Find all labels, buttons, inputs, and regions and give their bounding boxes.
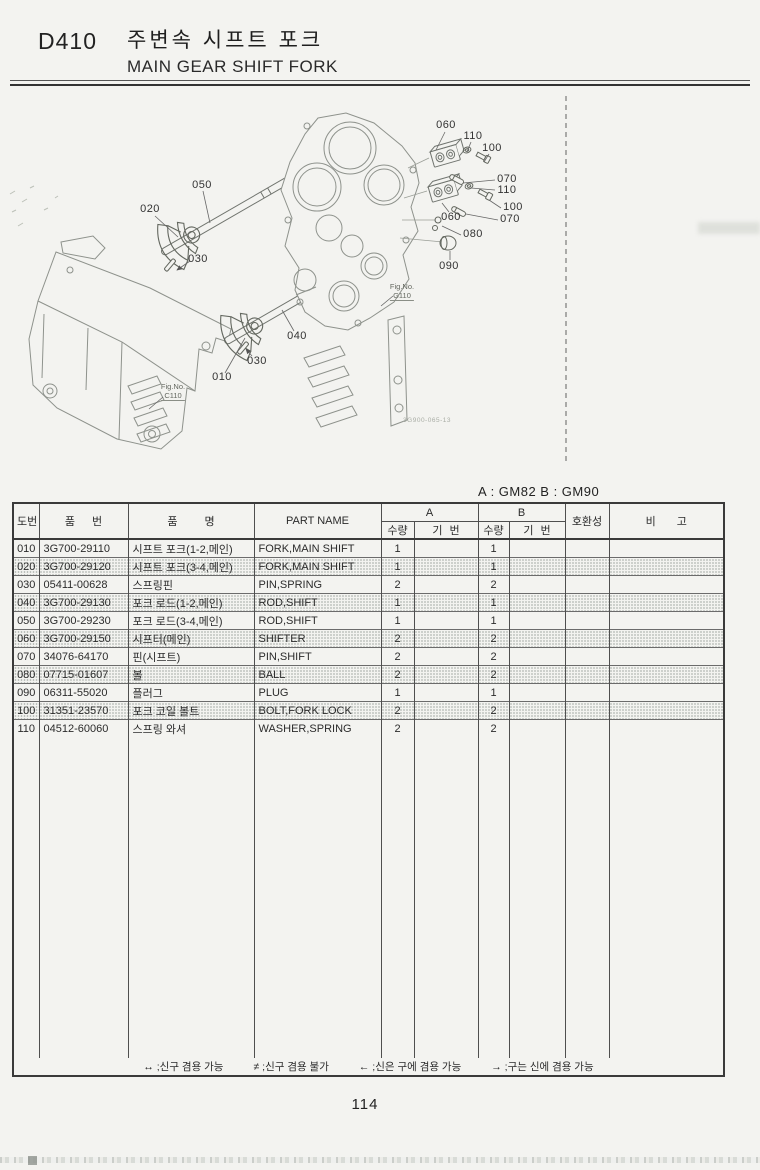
cell-remarks [609, 576, 724, 594]
cell-name-kr: 스프링 와셔 [128, 720, 254, 738]
table-row: 010 3G700-29110 시프트 포크(1-2,메인) FORK,MAIN… [13, 539, 724, 558]
callout-070-lower: 070 [500, 214, 520, 225]
cell-part-name: ROD,SHIFT [254, 612, 381, 630]
table-row: 080 07715-01607 볼 BALL 2 2 [13, 666, 724, 684]
cell-name-kr: 포크 코일 볼트 [128, 702, 254, 720]
legend-row: ↔ ;신구 겸용 가능 ≠ ;신구 겸용 불가 ← ;신은 구에 겸용 가능 →… [13, 1058, 724, 1076]
cell-qty-b: 2 [478, 648, 509, 666]
shifter-060-upper [429, 139, 466, 167]
cell-ref-no: 010 [13, 539, 39, 558]
cell-ref-b [509, 630, 565, 648]
cell-ref-a [414, 612, 478, 630]
cell-compat [565, 720, 609, 738]
fig-ref-g110: Fig.No. G110 [390, 283, 414, 301]
cell-ref-no: 040 [13, 594, 39, 612]
cell-part-name: ROD,SHIFT [254, 594, 381, 612]
callout-030-upper: 030 [188, 254, 208, 265]
legend-item-both: ↔ ;신구 겸용 가능 [143, 1059, 223, 1074]
scan-edge-band [0, 1157, 760, 1163]
cell-compat [565, 612, 609, 630]
spring-pin-030-lower [237, 341, 249, 354]
cell-compat [565, 666, 609, 684]
callout-100-lower: 100 [503, 202, 523, 213]
page-title-english: MAIN GEAR SHIFT FORK [127, 57, 338, 77]
cell-qty-a: 2 [381, 720, 414, 738]
callout-050: 050 [192, 180, 212, 191]
col-header-ref-no: 도번 [13, 503, 39, 539]
cell-qty-b: 1 [478, 594, 509, 612]
page-number: 114 [0, 1096, 730, 1113]
cell-ref-a [414, 720, 478, 738]
table-row: 050 3G700-29230 포크 로드(3-4,메인) ROD,SHIFT … [13, 612, 724, 630]
plate-code: 3G900-065-13 [403, 417, 451, 424]
cell-qty-b: 2 [478, 702, 509, 720]
col-group-a: A [381, 503, 478, 522]
table-row: 090 06311-55020 플러그 PLUG 1 1 [13, 684, 724, 702]
cell-name-kr: 시프터(메인) [128, 630, 254, 648]
cell-part-no: 3G700-29120 [39, 558, 128, 576]
cell-qty-a: 2 [381, 630, 414, 648]
callout-020: 020 [140, 204, 160, 215]
cell-part-no: 34076-64170 [39, 648, 128, 666]
ball-080 [433, 217, 442, 231]
cell-name-kr: 시프트 포크(3-4,메인) [128, 558, 254, 576]
cell-part-no: 31351-23570 [39, 702, 128, 720]
cell-remarks [609, 720, 724, 738]
col-header-ref-b: 기 번 [509, 522, 565, 540]
cell-name-kr: 시프트 포크(1-2,메인) [128, 539, 254, 558]
cell-remarks [609, 594, 724, 612]
col-header-qty-b: 수량 [478, 522, 509, 540]
cell-ref-b [509, 594, 565, 612]
callout-110-lower: 110 [497, 185, 516, 196]
cell-ref-b [509, 684, 565, 702]
cell-part-name: BALL [254, 666, 381, 684]
cell-ref-a [414, 684, 478, 702]
legend-item-neither: ≠ ;신구 겸용 불가 [253, 1059, 328, 1074]
cell-name-kr: 볼 [128, 666, 254, 684]
cell-ref-a [414, 539, 478, 558]
header-rule-thin [10, 80, 750, 81]
cell-qty-a: 2 [381, 576, 414, 594]
callout-010: 010 [212, 372, 232, 383]
cell-part-name: PIN,SHIFT [254, 648, 381, 666]
table-row: 100 31351-23570 포크 코일 볼트 BOLT,FORK LOCK … [13, 702, 724, 720]
cell-ref-b [509, 576, 565, 594]
cell-part-no: 06311-55020 [39, 684, 128, 702]
callout-040: 040 [287, 331, 307, 342]
cell-qty-a: 2 [381, 666, 414, 684]
page-title-korean: 주변속 시프트 포크 [127, 24, 323, 54]
cell-part-no: 3G700-29130 [39, 594, 128, 612]
table-row: 070 34076-64170 핀(시프트) PIN,SHIFT 2 2 [13, 648, 724, 666]
cell-qty-b: 1 [478, 558, 509, 576]
fig-ref-c110: Fig.No. C110 [161, 383, 185, 401]
scan-speckles [10, 186, 58, 226]
col-header-name-kr: 품 명 [128, 503, 254, 539]
exploded-parts-diagram: 050 020 030 040 030 010 060 110 100 070 … [0, 90, 760, 488]
cell-compat [565, 702, 609, 720]
cell-qty-a: 1 [381, 684, 414, 702]
cell-part-no: 04512-60060 [39, 720, 128, 738]
cell-qty-b: 1 [478, 612, 509, 630]
cell-ref-no: 100 [13, 702, 39, 720]
cell-qty-a: 2 [381, 648, 414, 666]
cell-part-no: 07715-01607 [39, 666, 128, 684]
cell-remarks [609, 539, 724, 558]
table-filler-row [13, 737, 724, 1058]
cell-part-name: PIN,SPRING [254, 576, 381, 594]
cell-remarks [609, 612, 724, 630]
cell-ref-b [509, 558, 565, 576]
cell-compat [565, 648, 609, 666]
cell-ref-a [414, 648, 478, 666]
compatibility-legend: ↔ ;신구 겸용 가능 ≠ ;신구 겸용 불가 ← ;신은 구에 겸용 가능 →… [17, 1059, 720, 1074]
cell-part-no: 3G700-29110 [39, 539, 128, 558]
cell-part-no: 3G700-29150 [39, 630, 128, 648]
callout-060-upper: 060 [436, 120, 456, 131]
cell-ref-no: 110 [13, 720, 39, 738]
cell-ref-no: 050 [13, 612, 39, 630]
cell-compat [565, 576, 609, 594]
cell-qty-a: 1 [381, 594, 414, 612]
cell-ref-no: 020 [13, 558, 39, 576]
cell-ref-a [414, 630, 478, 648]
cell-qty-b: 1 [478, 684, 509, 702]
cell-name-kr: 스프링핀 [128, 576, 254, 594]
callout-080: 080 [463, 229, 483, 240]
col-group-b: B [478, 503, 565, 522]
cell-ref-b [509, 648, 565, 666]
cell-ref-no: 060 [13, 630, 39, 648]
table-row: 030 05411-00628 스프링핀 PIN,SPRING 2 2 [13, 576, 724, 594]
cell-part-name: PLUG [254, 684, 381, 702]
cell-ref-b [509, 702, 565, 720]
cell-compat [565, 630, 609, 648]
spring-washer-110-lower [464, 182, 473, 190]
clutch-housing [29, 236, 231, 449]
cell-ref-no: 090 [13, 684, 39, 702]
bracket-plate [304, 316, 407, 427]
cell-qty-b: 1 [478, 539, 509, 558]
callout-100-upper: 100 [482, 143, 502, 154]
col-header-part-name: PART NAME [254, 503, 381, 539]
cell-part-name: WASHER,SPRING [254, 720, 381, 738]
header-rule-thick [10, 84, 750, 86]
catalog-page: D410 주변속 시프트 포크 MAIN GEAR SHIFT FORK [0, 0, 760, 1170]
cell-ref-no: 070 [13, 648, 39, 666]
cell-qty-b: 2 [478, 666, 509, 684]
cell-ref-a [414, 666, 478, 684]
parts-table: 도번 품 번 품 명 PART NAME A B 호환성 비 고 수량 기 번 … [12, 502, 725, 1077]
model-variant-note: A : GM82 B : GM90 [478, 484, 599, 499]
cell-ref-no: 080 [13, 666, 39, 684]
table-row: 020 3G700-29120 시프트 포크(3-4,메인) FORK,MAIN… [13, 558, 724, 576]
cell-part-name: SHIFTER [254, 630, 381, 648]
cell-ref-b [509, 666, 565, 684]
cell-remarks [609, 630, 724, 648]
cell-qty-b: 2 [478, 630, 509, 648]
col-header-remarks: 비 고 [609, 503, 724, 539]
scan-smudge [698, 222, 760, 234]
cell-ref-a [414, 594, 478, 612]
callout-030-lower: 030 [247, 356, 267, 367]
cell-ref-a [414, 558, 478, 576]
cell-remarks [609, 558, 724, 576]
section-code: D410 [38, 28, 97, 55]
cell-name-kr: 포크 로드(1-2,메인) [128, 594, 254, 612]
cell-remarks [609, 648, 724, 666]
table-row: 110 04512-60060 스프링 와셔 WASHER,SPRING 2 2 [13, 720, 724, 738]
table-row: 060 3G700-29150 시프터(메인) SHIFTER 2 2 [13, 630, 724, 648]
cell-part-name: FORK,MAIN SHIFT [254, 539, 381, 558]
cell-compat [565, 539, 609, 558]
callout-110-upper: 110 [463, 131, 482, 142]
col-header-compat: 호환성 [565, 503, 609, 539]
cell-name-kr: 핀(시프트) [128, 648, 254, 666]
cell-part-name: BOLT,FORK LOCK [254, 702, 381, 720]
callout-060-lower: 060 [441, 212, 461, 223]
cell-compat [565, 594, 609, 612]
cell-ref-b [509, 720, 565, 738]
cell-part-no: 05411-00628 [39, 576, 128, 594]
col-header-part-no: 품 번 [39, 503, 128, 539]
cell-qty-a: 1 [381, 539, 414, 558]
cell-name-kr: 포크 로드(3-4,메인) [128, 612, 254, 630]
cell-ref-b [509, 539, 565, 558]
col-header-qty-a: 수량 [381, 522, 414, 540]
col-header-ref-a: 기 번 [414, 522, 478, 540]
cell-part-no: 3G700-29230 [39, 612, 128, 630]
cell-name-kr: 플러그 [128, 684, 254, 702]
cell-remarks [609, 684, 724, 702]
cell-qty-a: 1 [381, 558, 414, 576]
cell-ref-no: 030 [13, 576, 39, 594]
cell-remarks [609, 666, 724, 684]
scan-edge-dot [28, 1156, 37, 1165]
cell-ref-a [414, 576, 478, 594]
table-row: 040 3G700-29130 포크 로드(1-2,메인) ROD,SHIFT … [13, 594, 724, 612]
cell-qty-a: 2 [381, 702, 414, 720]
cell-qty-a: 1 [381, 612, 414, 630]
cell-compat [565, 684, 609, 702]
cell-qty-b: 2 [478, 576, 509, 594]
cell-remarks [609, 702, 724, 720]
cell-compat [565, 558, 609, 576]
legend-item-new-on-old: ← ;신은 구에 겸용 가능 [359, 1059, 461, 1074]
diagram-linework [0, 90, 760, 488]
cell-part-name: FORK,MAIN SHIFT [254, 558, 381, 576]
cell-ref-a [414, 702, 478, 720]
cell-ref-b [509, 612, 565, 630]
callout-090: 090 [439, 261, 459, 272]
legend-item-old-on-new: → ;구는 신에 겸용 가능 [491, 1059, 593, 1074]
cell-qty-b: 2 [478, 720, 509, 738]
plug-090 [440, 236, 456, 250]
